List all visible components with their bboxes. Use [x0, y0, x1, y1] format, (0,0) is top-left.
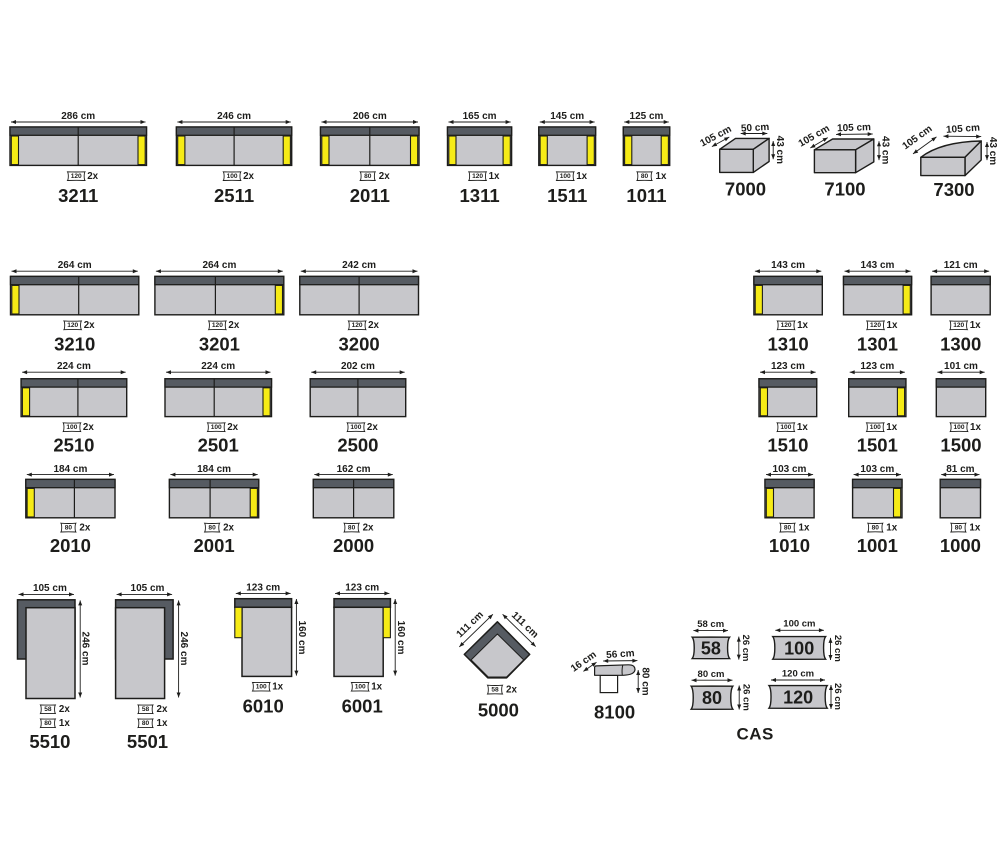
svg-text:2501: 2501: [198, 435, 239, 456]
svg-text:5510: 5510: [29, 731, 70, 752]
svg-text:3210: 3210: [54, 334, 95, 355]
svg-text:145 cm: 145 cm: [550, 111, 584, 122]
svg-text:1x: 1x: [969, 522, 980, 533]
svg-text:2510: 2510: [53, 435, 94, 456]
svg-text:43 cm: 43 cm: [880, 136, 891, 164]
svg-text:120: 120: [781, 322, 792, 329]
svg-text:202 cm: 202 cm: [341, 361, 375, 372]
svg-text:246 cm: 246 cm: [80, 632, 91, 666]
svg-text:2x: 2x: [379, 171, 390, 182]
svg-text:58: 58: [491, 686, 499, 693]
svg-text:160 cm: 160 cm: [296, 621, 307, 655]
svg-text:80: 80: [65, 524, 73, 531]
svg-text:7300: 7300: [933, 179, 974, 200]
svg-text:3200: 3200: [339, 334, 380, 355]
svg-text:7000: 7000: [725, 178, 766, 199]
svg-text:246 cm: 246 cm: [217, 111, 251, 122]
svg-text:2011: 2011: [350, 185, 390, 206]
svg-text:101 cm: 101 cm: [944, 361, 978, 372]
svg-text:105 cm: 105 cm: [946, 123, 981, 136]
svg-text:6001: 6001: [342, 695, 383, 716]
svg-text:165 cm: 165 cm: [463, 111, 497, 122]
svg-text:246 cm: 246 cm: [178, 632, 189, 666]
svg-text:120: 120: [472, 173, 483, 180]
svg-text:100: 100: [953, 424, 964, 431]
svg-text:43 cm: 43 cm: [987, 137, 998, 165]
svg-text:120: 120: [953, 322, 964, 329]
svg-text:26 cm: 26 cm: [832, 635, 843, 662]
svg-text:80: 80: [208, 524, 216, 531]
svg-text:26 cm: 26 cm: [740, 635, 751, 662]
svg-text:2x: 2x: [228, 320, 239, 331]
svg-text:2x: 2x: [243, 171, 254, 182]
svg-text:100: 100: [870, 424, 881, 431]
svg-text:264 cm: 264 cm: [58, 260, 92, 271]
svg-text:1x: 1x: [157, 718, 168, 729]
svg-text:1x: 1x: [371, 682, 382, 693]
svg-text:1x: 1x: [272, 682, 283, 693]
svg-text:1x: 1x: [576, 171, 587, 182]
svg-text:1310: 1310: [768, 334, 809, 355]
svg-text:103 cm: 103 cm: [773, 464, 807, 475]
svg-text:105 cm: 105 cm: [901, 123, 935, 152]
svg-text:58: 58: [142, 706, 150, 713]
svg-text:120 cm: 120 cm: [782, 669, 814, 680]
svg-text:224 cm: 224 cm: [201, 361, 235, 372]
svg-text:80: 80: [44, 720, 52, 727]
svg-text:100: 100: [355, 684, 366, 691]
svg-text:100: 100: [350, 424, 361, 431]
svg-text:162 cm: 162 cm: [337, 464, 371, 475]
svg-text:2x: 2x: [87, 171, 98, 182]
svg-text:2511: 2511: [214, 185, 254, 206]
svg-text:1010: 1010: [769, 535, 810, 556]
svg-text:26 cm: 26 cm: [740, 684, 751, 711]
svg-text:1x: 1x: [887, 320, 898, 331]
svg-text:105 cm: 105 cm: [837, 122, 871, 134]
svg-text:1511: 1511: [547, 185, 587, 206]
svg-text:100: 100: [66, 424, 77, 431]
svg-text:3211: 3211: [58, 185, 98, 206]
svg-text:7100: 7100: [824, 179, 865, 200]
svg-text:80: 80: [702, 688, 722, 708]
svg-text:1x: 1x: [59, 718, 70, 729]
svg-text:1510: 1510: [767, 435, 808, 456]
svg-text:286 cm: 286 cm: [61, 111, 95, 122]
svg-text:56 cm: 56 cm: [606, 648, 635, 661]
svg-text:100: 100: [780, 424, 791, 431]
svg-text:1x: 1x: [656, 171, 667, 182]
svg-text:105 cm: 105 cm: [33, 583, 67, 594]
svg-text:2x: 2x: [84, 320, 95, 331]
svg-text:184 cm: 184 cm: [53, 464, 87, 475]
svg-text:58 cm: 58 cm: [697, 619, 724, 630]
svg-text:1x: 1x: [886, 422, 897, 433]
svg-text:184 cm: 184 cm: [197, 464, 231, 475]
svg-text:120: 120: [71, 173, 82, 180]
svg-text:120: 120: [352, 322, 363, 329]
svg-text:123 cm: 123 cm: [345, 583, 379, 594]
svg-text:80: 80: [348, 524, 356, 531]
svg-text:2x: 2x: [223, 522, 234, 533]
svg-text:2x: 2x: [157, 704, 168, 715]
svg-text:2000: 2000: [333, 535, 374, 556]
svg-text:50 cm: 50 cm: [741, 122, 770, 134]
svg-text:1001: 1001: [857, 535, 898, 556]
svg-text:111 cm: 111 cm: [455, 609, 486, 640]
svg-text:100: 100: [227, 173, 238, 180]
svg-text:264 cm: 264 cm: [202, 260, 236, 271]
svg-text:80: 80: [872, 524, 880, 531]
svg-text:2x: 2x: [227, 422, 238, 433]
svg-text:120: 120: [212, 322, 223, 329]
svg-text:80: 80: [641, 173, 649, 180]
svg-text:100: 100: [560, 173, 571, 180]
svg-text:1x: 1x: [886, 522, 897, 533]
svg-text:1311: 1311: [460, 185, 500, 206]
svg-text:1x: 1x: [797, 320, 808, 331]
svg-text:224 cm: 224 cm: [57, 361, 91, 372]
svg-text:43 cm: 43 cm: [774, 136, 785, 164]
svg-text:206 cm: 206 cm: [353, 111, 387, 122]
svg-text:1501: 1501: [857, 435, 898, 456]
svg-text:143 cm: 143 cm: [771, 260, 805, 271]
svg-text:2x: 2x: [59, 704, 70, 715]
svg-text:1300: 1300: [940, 334, 981, 355]
svg-text:2x: 2x: [363, 522, 374, 533]
svg-text:105 cm: 105 cm: [131, 583, 165, 594]
svg-text:1x: 1x: [489, 171, 500, 182]
svg-text:5000: 5000: [478, 700, 519, 721]
svg-text:2x: 2x: [506, 684, 517, 695]
svg-text:58: 58: [701, 638, 721, 658]
svg-text:80 cm: 80 cm: [639, 667, 650, 695]
svg-text:2010: 2010: [50, 535, 91, 556]
svg-text:1x: 1x: [799, 522, 810, 533]
svg-text:80: 80: [955, 524, 963, 531]
svg-text:120: 120: [67, 322, 78, 329]
svg-text:1301: 1301: [857, 334, 898, 355]
svg-text:103 cm: 103 cm: [860, 464, 894, 475]
svg-text:100 cm: 100 cm: [783, 619, 815, 630]
svg-text:2x: 2x: [367, 422, 378, 433]
svg-text:26 cm: 26 cm: [832, 683, 843, 710]
svg-text:2001: 2001: [194, 535, 235, 556]
svg-text:CAS: CAS: [736, 725, 773, 744]
svg-text:80: 80: [364, 173, 372, 180]
svg-text:5501: 5501: [127, 731, 168, 752]
svg-text:2500: 2500: [337, 435, 378, 456]
svg-text:2x: 2x: [368, 320, 379, 331]
svg-text:3201: 3201: [199, 334, 240, 355]
svg-text:100: 100: [211, 424, 222, 431]
svg-text:1000: 1000: [940, 535, 981, 556]
svg-text:100: 100: [256, 684, 267, 691]
svg-text:100: 100: [784, 638, 814, 658]
svg-text:1x: 1x: [797, 422, 808, 433]
svg-text:125 cm: 125 cm: [630, 111, 664, 122]
svg-text:58: 58: [44, 706, 52, 713]
svg-text:242 cm: 242 cm: [342, 260, 376, 271]
svg-text:1x: 1x: [970, 320, 981, 331]
svg-text:2x: 2x: [83, 422, 94, 433]
svg-text:160 cm: 160 cm: [395, 621, 406, 655]
svg-text:120: 120: [870, 322, 881, 329]
svg-text:80: 80: [784, 524, 792, 531]
svg-text:80 cm: 80 cm: [698, 669, 725, 680]
svg-text:6010: 6010: [243, 695, 284, 716]
svg-text:121 cm: 121 cm: [944, 260, 978, 271]
svg-text:2x: 2x: [79, 522, 90, 533]
svg-text:1x: 1x: [970, 422, 981, 433]
svg-text:81 cm: 81 cm: [946, 464, 974, 475]
svg-text:1011: 1011: [626, 185, 666, 206]
svg-text:143 cm: 143 cm: [861, 260, 895, 271]
svg-text:1500: 1500: [940, 435, 981, 456]
svg-text:8100: 8100: [594, 701, 635, 722]
svg-text:120: 120: [783, 687, 813, 707]
svg-text:123 cm: 123 cm: [771, 361, 805, 372]
svg-text:123 cm: 123 cm: [246, 583, 280, 594]
svg-text:80: 80: [142, 720, 150, 727]
svg-text:123 cm: 123 cm: [860, 361, 894, 372]
